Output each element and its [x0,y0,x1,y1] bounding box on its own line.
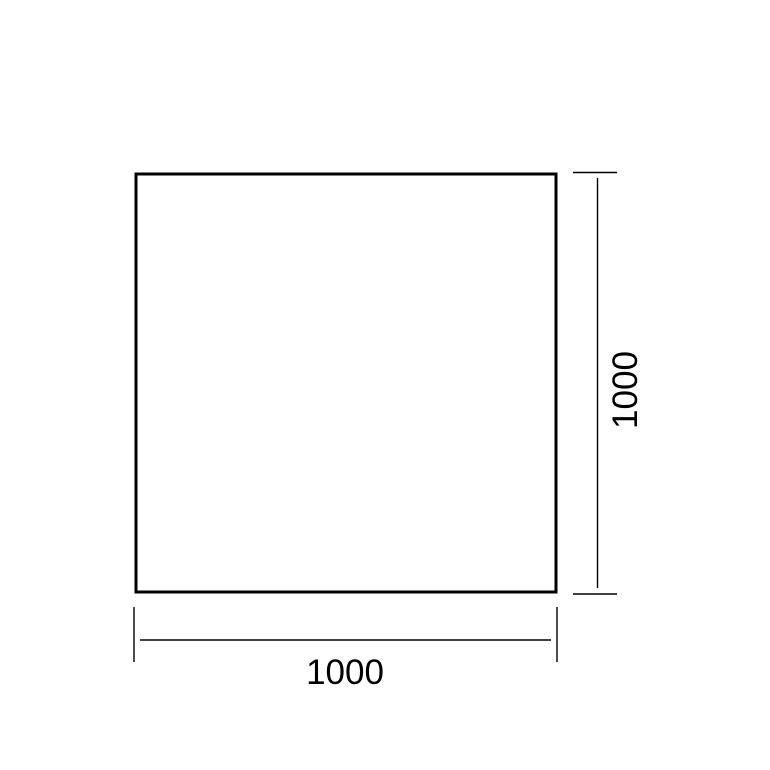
drawing-canvas: 1000 1000 [0,0,770,770]
technical-drawing: 1000 1000 [0,0,770,770]
horizontal-dimension: 1000 [134,607,557,692]
horizontal-dimension-label: 1000 [306,653,384,692]
vertical-dimension: 1000 [573,173,645,595]
vertical-dimension-label: 1000 [606,351,645,429]
square-outline [136,174,556,592]
